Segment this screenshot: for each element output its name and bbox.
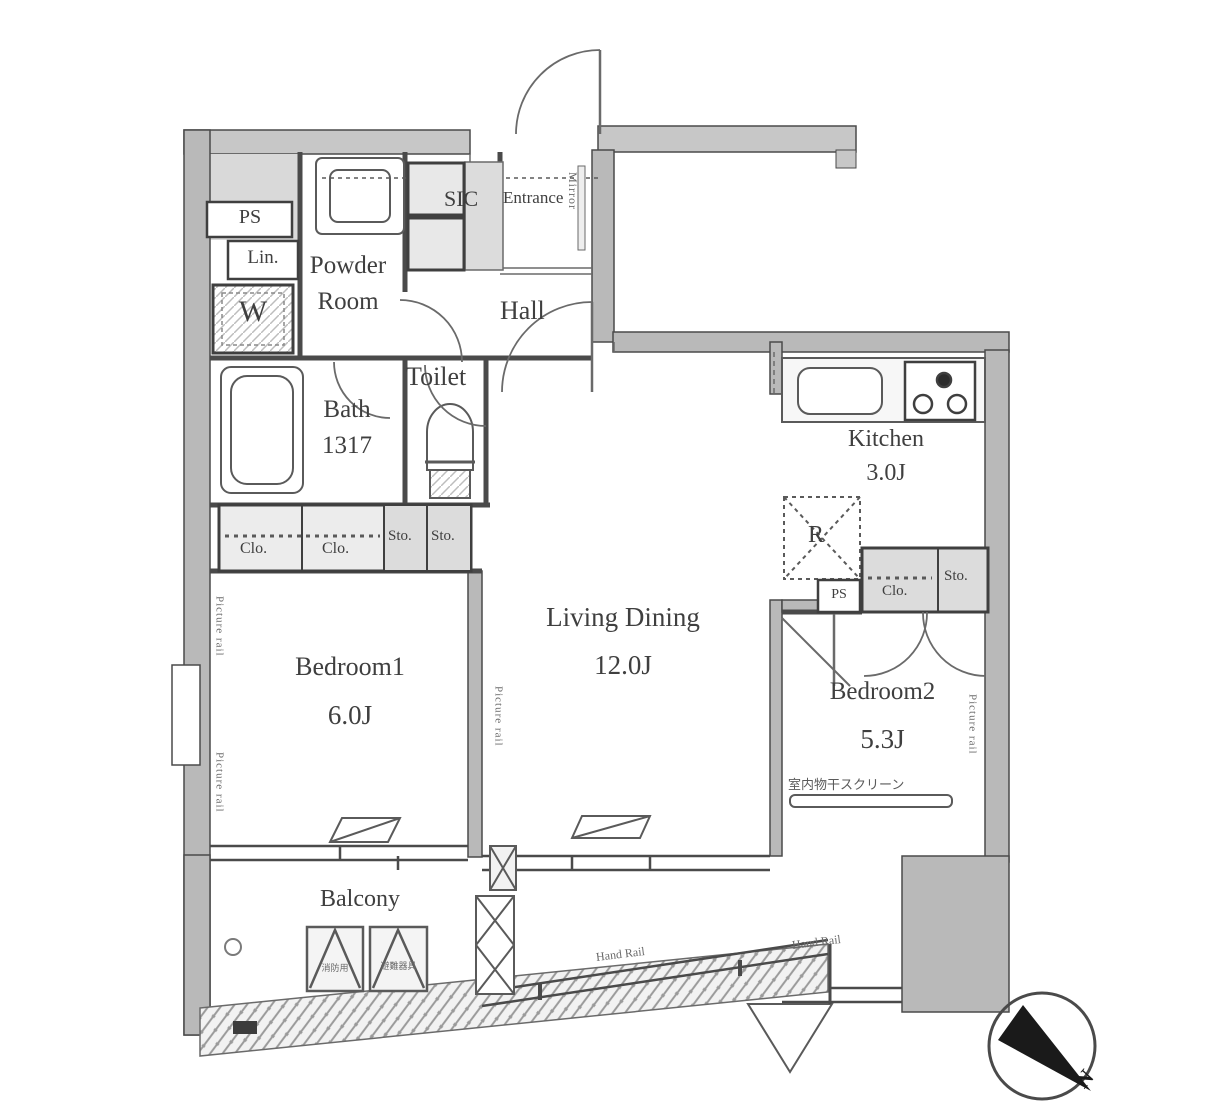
fridge-label: R xyxy=(808,522,824,550)
stove xyxy=(905,362,975,420)
hall-label: Hall xyxy=(500,296,545,326)
powder-room-label: Powder Room xyxy=(292,248,404,321)
ps-kitchen-label: PS xyxy=(820,587,858,603)
toilet-label: Toilet xyxy=(406,362,466,392)
hatch-left-label: 消防用 xyxy=(309,963,361,973)
kitchen-area: 3.0J xyxy=(826,460,946,488)
kitchen-closet xyxy=(862,548,988,612)
bath-name: Bath xyxy=(300,392,394,428)
balcony-label: Balcony xyxy=(320,886,400,914)
toilet-fixture xyxy=(425,404,475,498)
sash-window-icons xyxy=(330,816,650,842)
laundry-screen-label: 室内物干スクリーン xyxy=(788,778,904,793)
bedroom2-area: 5.3J xyxy=(800,724,965,755)
linen-label: Lin. xyxy=(230,247,296,269)
trellis-icon xyxy=(476,846,516,994)
washer-label: W xyxy=(225,295,281,330)
bathtub xyxy=(221,367,303,493)
powder-room-line2: Room xyxy=(292,284,404,320)
living-dining-area: 12.0J xyxy=(518,650,728,681)
bath-size: 1317 xyxy=(300,428,394,464)
kitchen-storage-label: Sto. xyxy=(944,568,968,585)
picture-rail-label-4: Picture rail xyxy=(966,694,979,814)
bath-label: Bath 1317 xyxy=(300,392,394,465)
sic-label: SIC xyxy=(444,186,478,211)
powder-room-line1: Powder xyxy=(292,248,404,284)
picture-rail-label-2: Picture rail xyxy=(213,752,226,872)
picture-rail-label-3: Picture rail xyxy=(492,686,505,806)
storage2-label: Sto. xyxy=(431,528,455,545)
bedroom2-label: Bedroom2 xyxy=(800,678,965,707)
mirror-label: Mirror xyxy=(565,172,579,252)
evacuation-hatch-icons xyxy=(307,927,427,991)
living-dining-label: Living Dining xyxy=(518,602,728,633)
kitchen-label: Kitchen xyxy=(826,426,946,454)
closet2-label: Clo. xyxy=(322,540,349,558)
entrance-label: Entrance xyxy=(503,188,563,208)
storage1-label: Sto. xyxy=(388,528,412,545)
sic-shelves xyxy=(408,162,503,270)
closet1-label: Clo. xyxy=(240,540,267,558)
floor-plan-page: PS Lin. W Powder Room SIC Entrance Mirro… xyxy=(0,0,1214,1118)
ps-label: PS xyxy=(213,206,287,229)
bedroom1-area: 6.0J xyxy=(270,700,430,731)
hatch-right-label: 避難器具 xyxy=(371,961,426,971)
kitchen-closet-label: Clo. xyxy=(882,583,907,600)
laundry-screen-bar xyxy=(790,795,952,807)
picture-rail-label-1: Picture rail xyxy=(213,596,226,716)
bedroom1-label: Bedroom1 xyxy=(270,652,430,682)
